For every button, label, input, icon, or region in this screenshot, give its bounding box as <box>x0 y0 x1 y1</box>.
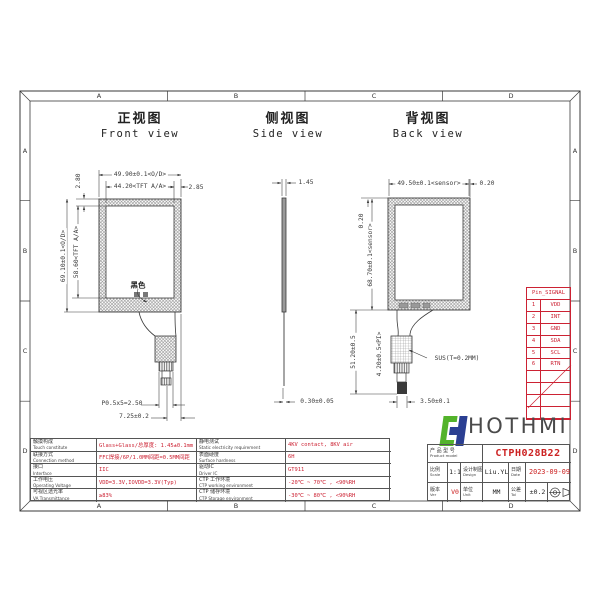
spec-label: 联接方式Connection method <box>31 452 97 465</box>
version-label: 版本Ver <box>428 483 448 503</box>
dim-front-tail-offset: 7.25±0.2 <box>119 414 149 420</box>
back-sensor-area <box>395 205 463 300</box>
front-fpc-connector <box>155 336 176 362</box>
dim-back-right-offset: 0.20 <box>480 181 495 187</box>
spec-value: -30℃ ~ 80℃ , <90%RH <box>286 489 391 502</box>
dim-side-thickness: 1.45 <box>299 180 314 186</box>
back-pad <box>411 303 420 308</box>
spec-table: 触摸构成Touch constitute Glass+Glass/总厚度: 1.… <box>30 438 390 501</box>
spec-label: 工作电压Operating Voltage <box>31 477 97 490</box>
date-value: 2023-09-09 <box>526 463 571 483</box>
dim-front-pin-pitch: P0.5x5=2.50 <box>102 401 143 407</box>
zone-top-c: C <box>372 92 377 100</box>
zone-bottom-d: D <box>508 502 513 510</box>
unit-label: 单位Unit <box>461 483 483 503</box>
pin-row: 4SDA <box>527 336 570 348</box>
designer-value: Liu.YL <box>483 463 509 483</box>
drawing-linework <box>0 0 600 600</box>
front-view-title-en: Front view <box>101 128 179 140</box>
spec-value: ≥83% <box>97 489 197 502</box>
spec-label: 静电测试Static electricity requirement <box>197 439 286 452</box>
zone-right-a: A <box>573 147 577 155</box>
title-block: 产 品 型 号Product model CTPH028B22 比例Scale … <box>427 444 570 501</box>
zone-right-b: B <box>573 247 577 255</box>
pin-table-header: Pin_SIGNAL <box>527 288 570 300</box>
spec-label: 接口Interface <box>31 464 97 477</box>
dim-front-od-width: 49.90±0.1<O/D> <box>112 172 168 178</box>
back-view-title-en: Back view <box>393 128 463 140</box>
tolerance-label: 公差Tol <box>509 483 526 503</box>
pin-row: 1VDD <box>527 300 570 312</box>
spec-value: GT911 <box>286 464 391 477</box>
spec-label: 驱动ICDriver IC <box>197 464 286 477</box>
dim-back-sensor-height: 68.70±0.1<sensor> <box>368 221 374 288</box>
projection-symbol <box>548 483 571 503</box>
back-view-title-cn: 背视图 <box>405 108 450 127</box>
product-model-label: 产 品 型 号Product model <box>428 445 483 463</box>
back-connector-tip <box>397 382 407 394</box>
spec-value: FFC焊接/6P/1.0MM间距=0.5MM间距 <box>97 452 197 465</box>
zone-left-d: D <box>22 447 27 455</box>
design-label: 设计制图Design <box>461 463 483 483</box>
dim-front-right-border: 2.85 <box>189 185 204 191</box>
scale-label: 比例Scale <box>428 463 448 483</box>
pin-row: 2INT <box>527 312 570 324</box>
spec-value: Glass+Glass/总厚度: 1.45±0.1mm <box>97 439 197 452</box>
spec-value: 4KV contact, 8KV air <box>286 439 391 452</box>
zone-left-c: C <box>23 347 28 355</box>
pin-row-empty <box>527 383 570 395</box>
spec-value: IIC <box>97 464 197 477</box>
dim-back-tail-length: 51.20±0.5 <box>351 333 357 371</box>
back-fpc-pins <box>394 363 409 373</box>
spec-value: VDD=3.3V,IOVDD=3.3V(Typ) <box>97 477 197 490</box>
spec-label: CTP 工作环境CTP working environment <box>197 477 286 490</box>
pin-row-empty <box>527 395 570 407</box>
dim-front-aa-height: 58.60<TFT A/A> <box>74 224 80 280</box>
scale-value: 1:1 <box>448 463 461 483</box>
zone-right-d: D <box>572 447 577 455</box>
side-view-title-cn: 侧视图 <box>265 108 310 127</box>
zone-bottom-c: C <box>372 502 377 510</box>
front-pad <box>143 292 148 297</box>
zone-top-d: D <box>508 92 513 100</box>
spec-label: 可视区透光率VA Transmittance <box>31 489 97 502</box>
pin-signal-table: Pin_SIGNAL 1VDD 2INT 3GND 4SDA 5SCL 6RTN <box>526 287 571 420</box>
product-model-value: CTPH028B22 <box>483 445 571 463</box>
back-view-drawing <box>350 179 477 408</box>
spec-label: 触摸构成Touch constitute <box>31 439 97 452</box>
zone-left-b: B <box>23 247 27 255</box>
front-black-border-label: 黑色 <box>131 280 146 291</box>
front-view-drawing <box>64 170 195 421</box>
zone-top-a: A <box>97 92 101 100</box>
dim-front-od-height: 69.10±0.1<O/D> <box>61 228 67 284</box>
dim-back-bottom: 3.50±0.1 <box>420 399 450 405</box>
back-sus-plate <box>391 336 412 363</box>
tolerance-value: ±0.2 <box>526 483 548 503</box>
spec-label: 表面硬度Surface hardness <box>197 452 286 465</box>
side-glass-section <box>282 198 286 312</box>
back-sus-label: SUS(T=0.2MM) <box>435 356 480 362</box>
brand-text: HOTHMI <box>468 414 574 444</box>
version-value: V0 <box>448 483 461 503</box>
third-angle-projection-icon <box>548 483 571 502</box>
dim-back-left-offset: 0.20 <box>359 214 365 229</box>
side-view-drawing <box>272 179 296 402</box>
pin-row: 6RTN <box>527 359 570 371</box>
drawing-sheet: A B C D A B C D A B C D A B C D 正视图 Fron… <box>0 0 600 600</box>
dim-back-pi: 4.20±0.5<PI> <box>377 330 383 379</box>
dim-side-glass: 0.30±0.05 <box>300 399 334 405</box>
dim-back-sensor-width: 49.50±0.1<sensor> <box>395 181 462 187</box>
spec-value: -20℃ ~ 70℃ , <90%RH <box>286 477 391 490</box>
back-pad <box>423 303 430 308</box>
back-pad <box>399 303 408 308</box>
side-view-title-en: Side view <box>253 128 323 140</box>
zone-bottom-b: B <box>234 502 238 510</box>
unit-value: MM <box>483 483 509 503</box>
spec-value: 6H <box>286 452 391 465</box>
zone-left-a: A <box>23 147 27 155</box>
pin-row-empty <box>527 371 570 383</box>
zone-top-b: B <box>234 92 238 100</box>
zone-right-c: C <box>573 347 578 355</box>
date-label: 日期Date <box>509 463 526 483</box>
spec-label: CTP 储存环境CTP Storage environment <box>197 489 286 502</box>
zone-bottom-a: A <box>97 502 101 510</box>
dim-front-top-border: 2.80 <box>76 174 82 189</box>
brand-logo-icon <box>439 416 467 446</box>
front-fpc-pins <box>159 362 173 371</box>
front-view-title-cn: 正视图 <box>117 108 162 127</box>
pin-row: 3GND <box>527 324 570 336</box>
pin-row: 5SCL <box>527 348 570 360</box>
dim-front-aa-width: 44.20<TFT A/A> <box>112 184 168 190</box>
